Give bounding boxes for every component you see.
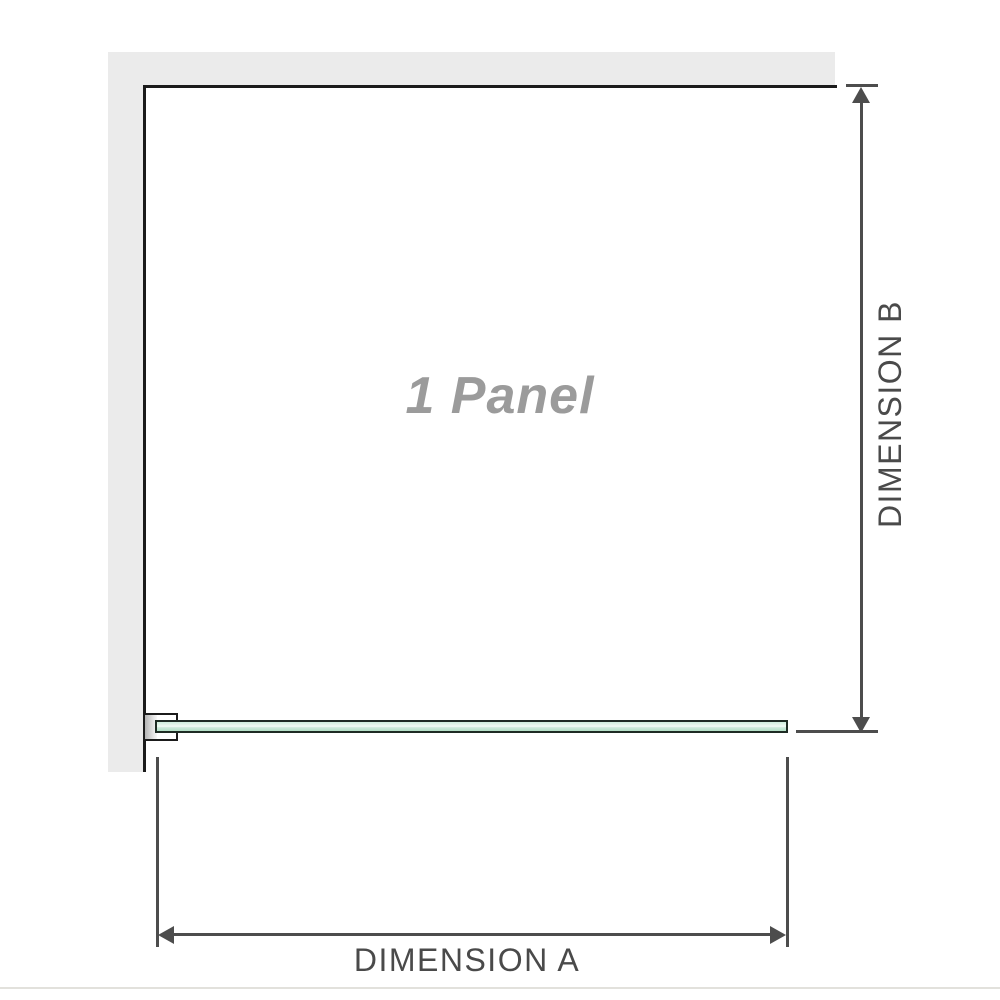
dimension-a-line (170, 933, 773, 936)
arrow-left-icon (158, 926, 174, 944)
arrow-up-icon (852, 87, 870, 103)
dimension-b-label: DIMENSION B (873, 289, 907, 539)
dimension-a-right-tick (786, 757, 789, 947)
arrow-down-icon (852, 717, 870, 733)
glass-panel (155, 720, 788, 733)
dimension-a-label: DIMENSION A (317, 942, 617, 978)
dimension-a-left-tick (156, 757, 159, 947)
enclosure-top-edge (143, 85, 837, 88)
wall-left (108, 52, 143, 772)
floor-line (0, 987, 1000, 989)
enclosure-left-edge (143, 85, 146, 772)
wall-top (108, 52, 835, 86)
arrow-right-icon (770, 926, 786, 944)
panel-count-label: 1 Panel (370, 364, 630, 428)
dimension-b-line (860, 96, 863, 720)
